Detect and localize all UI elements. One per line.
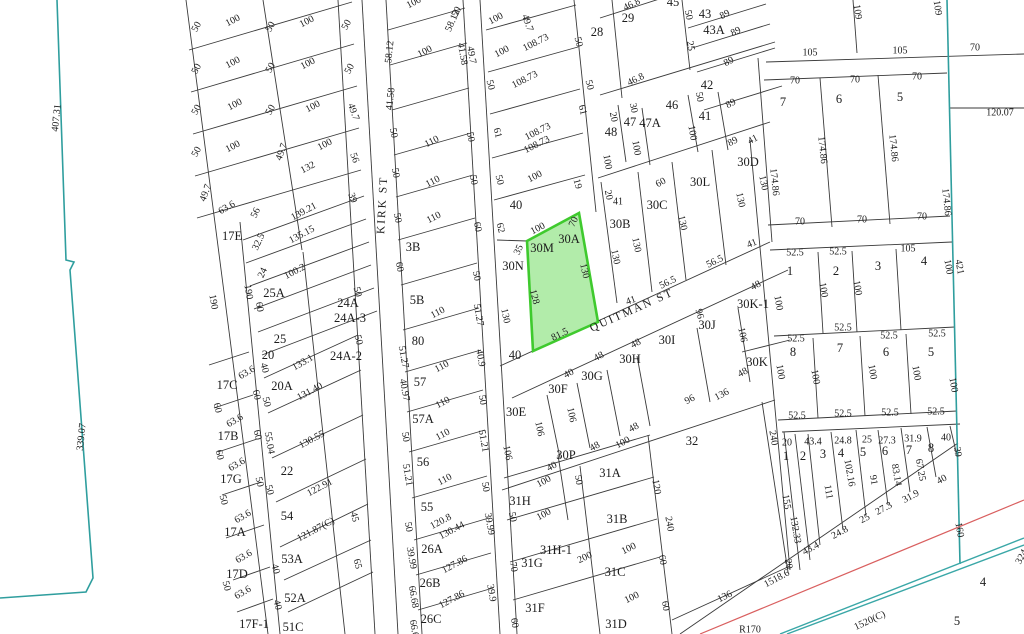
parcel-label: 40	[510, 198, 523, 212]
parcel-label: 57	[414, 375, 427, 389]
parcel-label: 5	[860, 445, 866, 459]
parcel-label: 4	[921, 254, 928, 268]
parcel-label: 24A-3	[334, 311, 366, 325]
parcel-label: 17F-1	[239, 617, 269, 631]
parcel-label: 46	[666, 98, 679, 112]
parcel-label: 31B	[607, 512, 628, 526]
dimension-label: 70	[507, 561, 520, 573]
dimension-label: 25	[862, 434, 872, 445]
parcel-label: 26C	[421, 612, 442, 626]
parcel-label: 32	[686, 434, 699, 448]
dimension-label: 50	[402, 521, 415, 533]
parcel-label: 6	[882, 444, 888, 458]
dimension-label: 39	[951, 446, 964, 458]
parcel-label: 45	[667, 0, 680, 9]
dimension-label: 52.5	[787, 333, 805, 344]
parcel-label: 30M	[530, 241, 554, 255]
parcel-label: 8	[790, 345, 796, 359]
parcel-label: 54	[281, 509, 294, 523]
dimension-label: 70	[850, 74, 860, 85]
dimension-label: 52.5	[928, 328, 946, 339]
parcel-label: 6	[836, 92, 842, 106]
parcel-label: 2	[800, 449, 806, 463]
dimension-label: 24.8	[834, 435, 852, 446]
dimension-label: 60	[656, 554, 669, 566]
dimension-label: 70	[970, 42, 980, 53]
parcel-label: 43A	[703, 23, 725, 37]
dimension-label: 52.5	[834, 322, 852, 333]
parcel-label: 17G	[220, 472, 242, 486]
plat-map-canvas: 501005010050501005010050501005010049.750…	[0, 0, 1024, 634]
parcel-label: 51C	[283, 620, 304, 634]
parcel-label: 1	[787, 264, 793, 278]
parcel-label: 17D	[226, 567, 248, 581]
parcel-label: 30D	[737, 155, 759, 169]
parcel-label: 4	[838, 446, 845, 460]
parcel-label: 31A	[599, 466, 621, 480]
parcel-label: 6	[883, 345, 889, 359]
parcel-label: 4	[980, 575, 987, 589]
parcel-label: 31H-1	[540, 543, 572, 557]
parcel-label: 30B	[610, 217, 631, 231]
parcel-label: 30K	[746, 355, 768, 369]
parcel-label: 30C	[647, 198, 668, 212]
parcel-label: 3B	[406, 240, 421, 254]
parcel-label: 3	[875, 259, 881, 273]
dimension-label: 50	[476, 394, 489, 406]
dimension-label: 52.5	[881, 407, 899, 418]
parcel-label: 29	[622, 11, 635, 25]
parcel-label: 30J	[698, 318, 716, 332]
parcel-label: 30L	[690, 175, 710, 189]
parcel-label: 30H	[619, 352, 641, 366]
parcel-label: 57A	[412, 412, 434, 426]
dimension-label: 70	[917, 211, 927, 222]
dimension-label: 52.5	[788, 410, 806, 421]
parcel-label: 47A	[639, 116, 661, 130]
parcel-label: 7	[837, 341, 843, 355]
parcel-label: 22	[281, 464, 294, 478]
dimension-label: 109	[851, 4, 864, 20]
dimension-label: 52.5	[829, 246, 847, 257]
parcel-label: 8	[928, 441, 934, 455]
parcel-label: 26B	[420, 576, 441, 590]
dimension-label: 41.58	[384, 87, 397, 111]
dimension-label: 40	[941, 432, 951, 443]
parcel-label: 5	[928, 345, 934, 359]
dimension-label: 52.5	[786, 247, 804, 258]
parcel-label: 28	[591, 25, 604, 39]
dimension-label: 120.07	[986, 107, 1014, 118]
parcel-label: 3	[820, 447, 826, 461]
parcel-label: 17C	[217, 378, 238, 392]
parcel-label: 31C	[605, 565, 626, 579]
parcel-label: 31G	[521, 556, 543, 570]
dimension-label: 52.5	[880, 330, 898, 341]
parcel-label: 5B	[410, 293, 425, 307]
dimension-label: 50	[572, 474, 585, 486]
dimension-label: 105	[893, 45, 908, 56]
parcel-label: 56	[417, 455, 430, 469]
parcel-label: 17B	[218, 429, 239, 443]
parcel-label: 7	[906, 443, 912, 457]
dimension-label: 91	[867, 474, 880, 486]
dimension-label: 70	[857, 214, 867, 225]
dimension-label: 58.12	[383, 40, 396, 64]
parcel-label: 25A	[263, 286, 285, 300]
parcel-label: 40	[509, 348, 522, 362]
dimension-label: 70	[912, 71, 922, 82]
dimension-label: 50	[506, 511, 519, 523]
parcel-label: 48	[605, 125, 618, 139]
parcel-label: 5	[954, 614, 960, 628]
dimension-label: 52.5	[834, 408, 852, 419]
dimension-label: 70	[795, 216, 805, 227]
parcel-label: 55	[421, 500, 434, 514]
parcel-label: 30F	[548, 382, 568, 396]
dimension-label: 50	[479, 481, 492, 493]
dimension-label: 25	[684, 40, 697, 52]
parcel-label: 43	[699, 7, 712, 21]
parcel-label: 2	[833, 264, 839, 278]
parcel-label: 41	[699, 109, 712, 123]
dimension-label: 109	[931, 0, 944, 16]
parcel-label: 7	[780, 95, 786, 109]
parcel-label: 26A	[421, 542, 443, 556]
dimension-label: 60	[508, 617, 521, 629]
parcel-label: 30G	[581, 369, 603, 383]
parcel-label: 42	[701, 78, 714, 92]
dimension-label: 105	[803, 47, 818, 58]
dimension-label: 43.4	[804, 436, 822, 447]
parcel-label: 31H	[509, 494, 531, 508]
parcel-label: 52A	[284, 591, 306, 605]
dimension-label: 60	[659, 600, 672, 612]
parcel-label: 31F	[525, 601, 545, 615]
parcel-label: 30I	[659, 333, 676, 347]
dimension-label: 52.5	[927, 406, 945, 417]
parcel-label: 24A-2	[330, 349, 362, 363]
parcel-label: 5	[897, 90, 903, 104]
parcel-label: 17E	[222, 229, 243, 243]
parcel-label: 30N	[502, 259, 524, 273]
parcel-label: 17A	[224, 525, 246, 539]
parcel-label: 47	[624, 115, 637, 129]
dimension-label: 70	[790, 75, 800, 86]
dimension-label: 50	[399, 431, 412, 443]
parcel-label: 20A	[271, 379, 293, 393]
parcel-label: 80	[412, 334, 425, 348]
parcel-label: 53A	[281, 552, 303, 566]
parcel-label: 1	[783, 449, 789, 463]
dimension-label: 20	[782, 437, 792, 448]
parcel-label: 30E	[506, 405, 527, 419]
parcel-label: 30K-1	[737, 297, 769, 311]
parcel-label: 30P	[556, 448, 576, 462]
dimension-label: R170	[739, 624, 761, 634]
parcel-label: 25	[274, 332, 287, 346]
parcel-label: 31D	[605, 617, 627, 631]
dimension-label: 105	[901, 243, 916, 254]
dimension-label: 60	[253, 301, 266, 313]
plat-map: 501005010050501005010050501005010049.750…	[0, 0, 1024, 634]
dimension-label: 50	[693, 91, 706, 103]
parcel-label: 20	[262, 348, 275, 362]
parcel-label: 30A	[558, 232, 580, 246]
dimension-label: 41	[613, 196, 623, 207]
parcel-label: 24A	[337, 296, 359, 310]
